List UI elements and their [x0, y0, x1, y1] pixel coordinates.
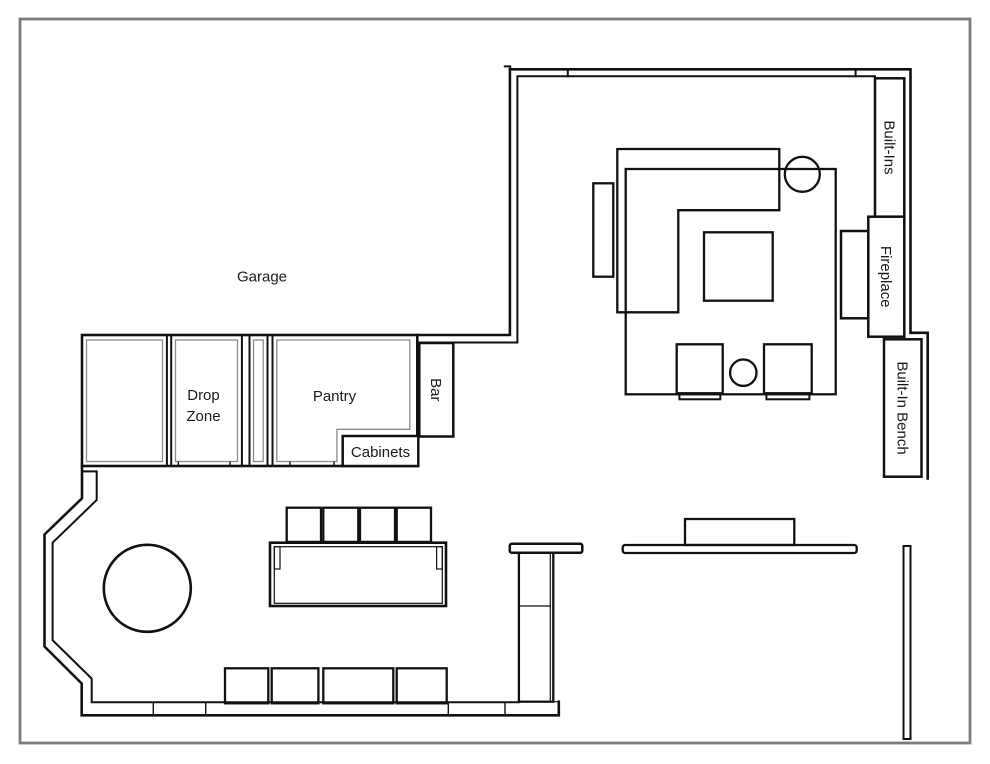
sideboard-top	[623, 545, 857, 553]
wall-corner-step	[505, 66, 510, 69]
stool	[287, 508, 321, 542]
stool	[323, 508, 358, 542]
sectional-sofa	[617, 149, 779, 312]
seat	[272, 668, 319, 703]
built-ins-label: Built-Ins	[880, 120, 897, 174]
island-notch-left	[274, 547, 280, 569]
rug	[626, 169, 836, 394]
closet-interior	[87, 340, 163, 462]
kitchen-island-countertop	[274, 547, 442, 604]
round-end-table	[785, 157, 820, 192]
round-table	[104, 545, 191, 632]
side-table-round	[730, 360, 756, 386]
hearth	[841, 231, 868, 318]
stool	[397, 508, 431, 542]
sideboard-body	[685, 519, 794, 545]
garage-label: Garage	[237, 269, 287, 286]
walls	[45, 66, 928, 715]
island-notch-right	[437, 547, 443, 569]
counter-seats	[225, 668, 447, 703]
coffee-table	[704, 232, 773, 300]
pantry-label: Pantry	[313, 388, 357, 405]
dining-area	[623, 519, 911, 739]
bench-seat	[323, 668, 393, 703]
drop-zone-label: DropZone	[186, 387, 220, 425]
door-recess-interior	[254, 340, 264, 462]
armchair-right	[764, 344, 812, 393]
fireplace-label: Fireplace	[877, 246, 894, 308]
seat	[225, 668, 268, 703]
right-wall-screen	[904, 546, 911, 739]
stool	[360, 508, 395, 542]
cabinets-label: Cabinets	[351, 444, 410, 461]
bar-label: Bar	[427, 378, 444, 401]
floor-plan-page: Garage DropZone Pantry Cabinets Bar Buil…	[0, 0, 990, 764]
labels: Garage DropZone Pantry Cabinets Bar Buil…	[186, 120, 910, 461]
kitchen-island	[270, 543, 446, 606]
console-table	[593, 183, 613, 276]
armchair-right-back	[766, 393, 809, 399]
armchair-left-back	[679, 393, 720, 399]
wall-living-inner	[417, 76, 875, 342]
seat	[397, 668, 447, 703]
kitchen	[104, 508, 583, 704]
wall-bay-outer	[45, 466, 559, 715]
floor-plan-canvas: Garage DropZone Pantry Cabinets Bar Buil…	[0, 0, 990, 764]
built-in-bench-label: Built-In Bench	[894, 361, 911, 454]
peninsula-countertop	[510, 544, 583, 553]
peninsula-cabinet	[519, 553, 553, 702]
living-room	[593, 149, 835, 399]
armchair-left	[677, 344, 723, 393]
island-stools	[287, 508, 431, 542]
